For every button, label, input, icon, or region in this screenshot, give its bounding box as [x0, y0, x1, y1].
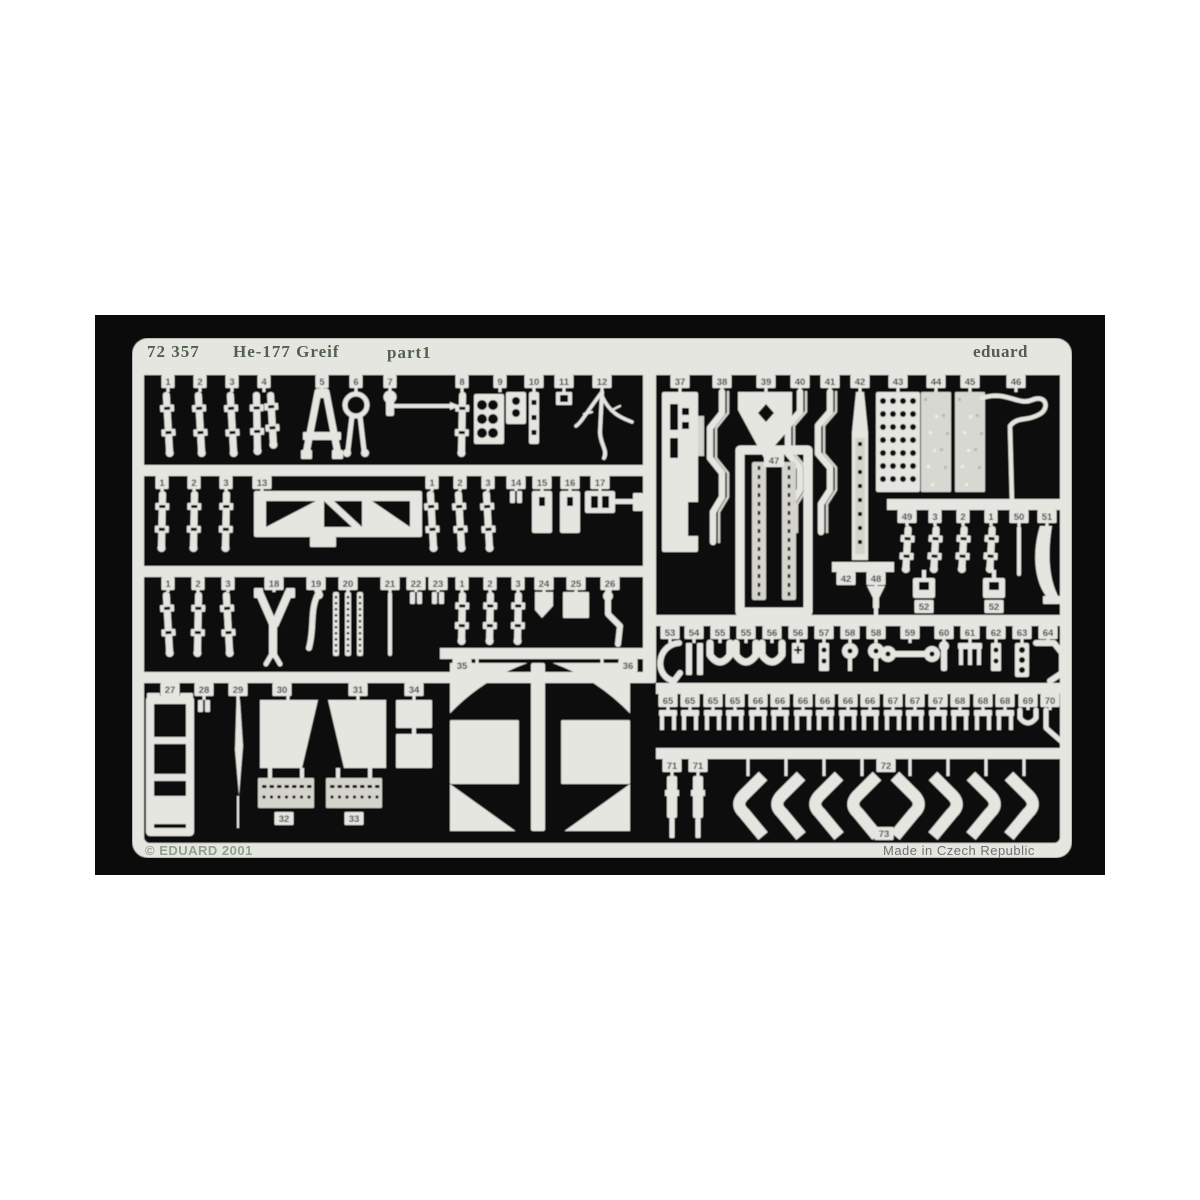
part-number: 71: [667, 761, 678, 772]
part-number: 57: [819, 628, 830, 639]
part-number: 55: [741, 628, 752, 639]
part-number: 53: [665, 628, 676, 639]
part-number: 10: [529, 377, 540, 388]
part-number: 37: [675, 377, 686, 388]
part-number: 27: [165, 685, 176, 696]
part-number: 63: [1017, 628, 1028, 639]
fret-part-61: 61: [958, 626, 982, 665]
fret-part-43: 43: [876, 375, 920, 492]
part-number: 69: [1023, 696, 1034, 707]
photo-etch-fret: 1234567891011121231312314151617123181920…: [132, 338, 1072, 858]
part-number: 17: [595, 478, 606, 489]
part-number: 28: [199, 685, 210, 696]
part-number: 66: [753, 696, 764, 707]
copyright-text: © EDUARD 2001: [145, 843, 253, 858]
part-number: 56: [767, 628, 778, 639]
fret-rail: [832, 562, 894, 572]
part-number: 72: [881, 761, 892, 772]
part-number: 1: [165, 377, 171, 388]
fret-part-37: 37: [662, 375, 704, 552]
part-number: 47: [769, 456, 780, 467]
product-title: He-177 Greif: [233, 342, 340, 362]
part-number: 67: [910, 696, 921, 707]
part-number: 49: [902, 512, 913, 523]
part-number: 45: [965, 377, 976, 388]
part-number: 12: [597, 377, 608, 388]
part-number: 67: [888, 696, 899, 707]
fret-rail: [656, 683, 1060, 694]
part-number: 22: [411, 579, 422, 590]
part-number: 42: [841, 574, 852, 585]
part-number: 1: [165, 579, 171, 590]
part-number: 60: [939, 628, 950, 639]
part-number: 52: [919, 602, 930, 613]
part-number: 42: [855, 377, 866, 388]
fret-part-72: 72: [877, 759, 896, 772]
part-number: 8: [459, 377, 464, 388]
part-number: 41: [825, 377, 836, 388]
part-number: 38: [717, 377, 728, 388]
part-number: 67: [933, 696, 944, 707]
part-number: 3: [515, 579, 520, 590]
part-number: 66: [843, 696, 854, 707]
part-number: 50: [1014, 512, 1025, 523]
brand-logo: eduard: [973, 342, 1028, 362]
part-number: 55: [715, 628, 726, 639]
fret-part-45: 45: [955, 375, 985, 492]
part-number: 5: [319, 377, 325, 388]
part-number: 66: [798, 696, 809, 707]
part-number: 26: [605, 579, 616, 590]
fret-part-44: 44: [921, 375, 951, 492]
part-number: 68: [1000, 696, 1011, 707]
fret-extra-rect: [531, 663, 545, 831]
fret-rail: [887, 499, 1060, 510]
part-number: 71: [693, 761, 704, 772]
part-number: 1: [429, 478, 435, 489]
part-number: 2: [487, 579, 492, 590]
part-number: 3: [223, 478, 228, 489]
part-number: 31: [353, 685, 364, 696]
fret-rail: [144, 465, 650, 476]
part-number: 66: [775, 696, 786, 707]
fret-part-73: 73: [875, 827, 894, 840]
part-number: 61: [965, 628, 976, 639]
part-number: 11: [559, 377, 570, 388]
part-number: 16: [565, 478, 576, 489]
part-number: 59: [905, 628, 916, 639]
part-number: 36: [623, 661, 634, 672]
part-number: 13: [257, 478, 268, 489]
part-number: 32: [279, 814, 290, 825]
fret-part-63: 63: [1013, 626, 1032, 677]
part-number: 3: [932, 512, 937, 523]
fret-part-16: 16: [560, 476, 580, 533]
part-number: 44: [931, 377, 942, 388]
part-number: 1: [159, 478, 165, 489]
part-number: 3: [225, 579, 230, 590]
part-number: 65: [730, 696, 741, 707]
part-number: 2: [195, 579, 200, 590]
part-number: 23: [433, 579, 444, 590]
part-number: 40: [795, 377, 806, 388]
product-photo-page: 1234567891011121231312314151617123181920…: [0, 0, 1200, 1200]
part-number: 56: [793, 628, 804, 639]
fret-rail: [440, 648, 650, 659]
part-number: 65: [708, 696, 719, 707]
part-number: 35: [457, 661, 468, 672]
part-label: part1: [387, 343, 432, 363]
part-number: 3: [229, 377, 234, 388]
part-number: 58: [845, 628, 856, 639]
part-number: 68: [978, 696, 989, 707]
part-number: 54: [689, 628, 700, 639]
part-number: 73: [879, 829, 890, 840]
part-number: 1: [459, 579, 465, 590]
part-number: 39: [761, 377, 772, 388]
part-number: 30: [277, 685, 288, 696]
part-number: 9: [497, 377, 502, 388]
part-number: 15: [537, 478, 548, 489]
part-number: 48: [871, 574, 882, 585]
part-number: 51: [1042, 512, 1053, 523]
part-number: 2: [191, 478, 196, 489]
made-in-text: Made in Czech Republic: [883, 843, 1035, 858]
part-number: 70: [1045, 696, 1056, 707]
part-number: 2: [197, 377, 202, 388]
part-number: 43: [893, 377, 904, 388]
part-number: 66: [820, 696, 831, 707]
part-number: 52: [989, 602, 1000, 613]
fret-rail: [656, 364, 1060, 375]
part-number: 64: [1043, 628, 1054, 639]
part-number: 18: [269, 579, 280, 590]
fret-part-15: 15: [532, 476, 552, 533]
fret-rail: [144, 566, 650, 577]
part-number: 34: [409, 685, 420, 696]
part-number: 4: [261, 377, 267, 388]
part-number: 3: [485, 478, 490, 489]
part-number: 2: [960, 512, 965, 523]
fret-rail: [656, 748, 1060, 759]
catalog-number: 72 357: [147, 342, 200, 362]
part-number: 19: [311, 579, 322, 590]
part-number: 21: [385, 579, 396, 590]
fret-rail: [656, 615, 1060, 626]
part-number: 65: [663, 696, 674, 707]
fret-part-25: 25: [563, 577, 589, 618]
photo-etch-sheet-photo: 1234567891011121231312314151617123181920…: [95, 315, 1105, 875]
part-number: 2: [457, 478, 462, 489]
part-number: 6: [353, 377, 358, 388]
part-number: 7: [387, 377, 392, 388]
part-number: 33: [349, 814, 360, 825]
part-number: 25: [571, 579, 582, 590]
part-number: 65: [685, 696, 696, 707]
part-number: 66: [865, 696, 876, 707]
part-number: 24: [539, 579, 550, 590]
part-number: 58: [871, 628, 882, 639]
fret-extra-rect: [643, 364, 656, 683]
part-number: 29: [233, 685, 244, 696]
fret-rail: [144, 672, 650, 683]
part-number: 1: [988, 512, 994, 523]
part-number: 20: [343, 579, 354, 590]
part-number: 14: [511, 478, 522, 489]
part-number: 46: [1011, 377, 1022, 388]
part-number: 68: [955, 696, 966, 707]
part-number: 62: [991, 628, 1002, 639]
fret-part-42: 42: [837, 572, 856, 585]
